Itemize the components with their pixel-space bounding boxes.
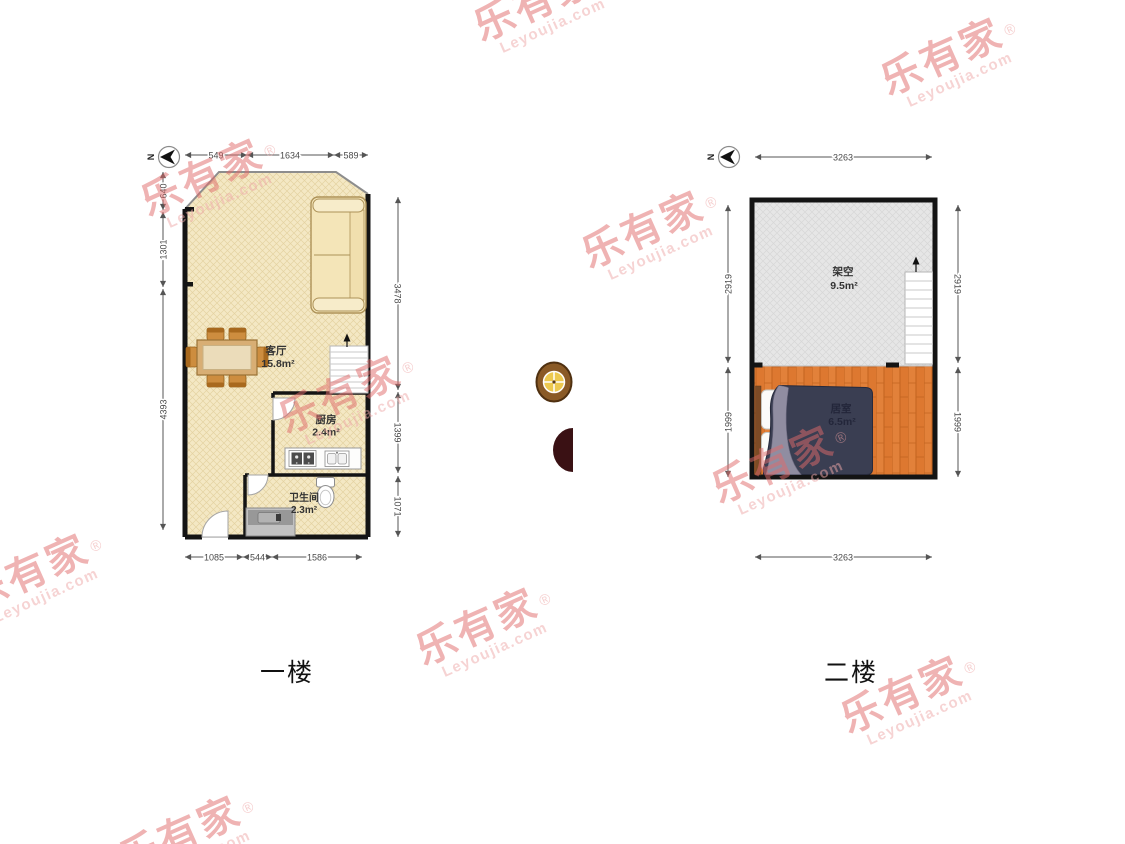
room-area: 9.5m² <box>830 280 858 292</box>
watermark: 乐有家® Leyoujia.com <box>113 785 266 844</box>
floor2-title: 二楼 <box>824 653 878 689</box>
chair-icon <box>186 347 197 367</box>
dim-label: 1586 <box>307 553 327 563</box>
sink-icon <box>325 451 349 467</box>
chair-icon <box>229 328 246 340</box>
sofa-icon <box>311 197 366 313</box>
dim-label: 4393 <box>159 399 169 419</box>
dim-label: 544 <box>250 553 265 563</box>
dim-label: 1301 <box>159 239 169 259</box>
dim-label: 1071 <box>393 496 403 516</box>
floor2-dims-left: 2919 1999 <box>724 205 734 477</box>
oval-knob-icon <box>537 363 572 402</box>
stove-icon <box>289 451 316 467</box>
dim-label: 1399 <box>393 422 403 442</box>
dim-label: 1999 <box>724 412 734 432</box>
room-area: 15.8m² <box>261 358 295 370</box>
dim-label: 3478 <box>393 283 403 303</box>
floor1-title: 一楼 <box>260 653 314 689</box>
north-label: N <box>706 154 716 161</box>
dim-label: 2919 <box>724 274 734 294</box>
dim-label: 1634 <box>280 151 300 161</box>
room-area: 2.4m² <box>312 427 340 439</box>
floor1-plan: N 549 1634 589 640 1301 4393 3478 1399 <box>140 135 420 565</box>
wall-stub <box>755 363 763 368</box>
wall-tick <box>185 207 194 212</box>
room-name: 厨房 <box>316 413 337 426</box>
floorplan-page: N 549 1634 589 640 1301 4393 3478 1399 <box>0 0 1125 844</box>
wall-stub <box>886 363 899 368</box>
stairs-icon <box>905 257 933 365</box>
bathroom-vanity-icon <box>246 508 295 536</box>
wall-tick <box>185 282 193 287</box>
floor2-dims-top: 3263 <box>755 153 932 163</box>
dim-label: 1085 <box>204 553 224 563</box>
floor1-dims-top: 549 1634 589 <box>185 151 368 161</box>
floor2-dims-bottom: 3263 <box>755 553 932 563</box>
room-name: 居室 <box>831 402 852 415</box>
bed-icon <box>756 386 873 476</box>
chair-icon <box>207 328 224 340</box>
watermark: 乐有家® Leyoujia.com <box>410 577 563 686</box>
dim-label: 2919 <box>953 274 963 294</box>
dim-label: 549 <box>208 151 223 161</box>
middle-decor <box>520 350 590 480</box>
watermark: 乐有家® Leyoujia.com <box>875 7 1028 116</box>
half-disc-icon <box>553 428 573 472</box>
chair-icon <box>229 375 246 387</box>
north-label: N <box>146 154 156 161</box>
floor1-dims-right: 3478 1399 1071 <box>393 197 403 537</box>
floor2-plan: N 3263 2919 1999 2919 1999 3263 <box>700 135 980 565</box>
room-area: 6.5m² <box>828 416 856 428</box>
floor2-dims-right: 2919 1999 <box>953 205 963 477</box>
dim-label: 1999 <box>953 412 963 432</box>
dim-label: 589 <box>343 151 358 161</box>
room-name: 架空 <box>832 265 854 278</box>
bed-headboard <box>756 386 762 475</box>
north-compass-icon: N <box>146 147 180 168</box>
watermark: 乐有家® Leyoujia.com <box>468 0 621 63</box>
dim-label: 3263 <box>833 153 853 163</box>
north-compass-icon: N <box>706 147 740 168</box>
toilet-icon <box>317 478 335 508</box>
dim-label: 640 <box>159 183 169 198</box>
kitchen-counter-icon <box>285 448 361 469</box>
chair-icon <box>207 375 224 387</box>
floor1-dims-bottom: 1085 544 1586 <box>185 553 362 563</box>
room-name: 卫生间 <box>289 491 319 504</box>
watermark: 乐有家® Leyoujia.com <box>0 523 115 632</box>
floor1-dims-left: 640 1301 4393 <box>159 172 169 530</box>
dim-label: 3263 <box>833 553 853 563</box>
room-area: 2.3m² <box>291 505 318 516</box>
room-name: 客厅 <box>265 344 287 357</box>
